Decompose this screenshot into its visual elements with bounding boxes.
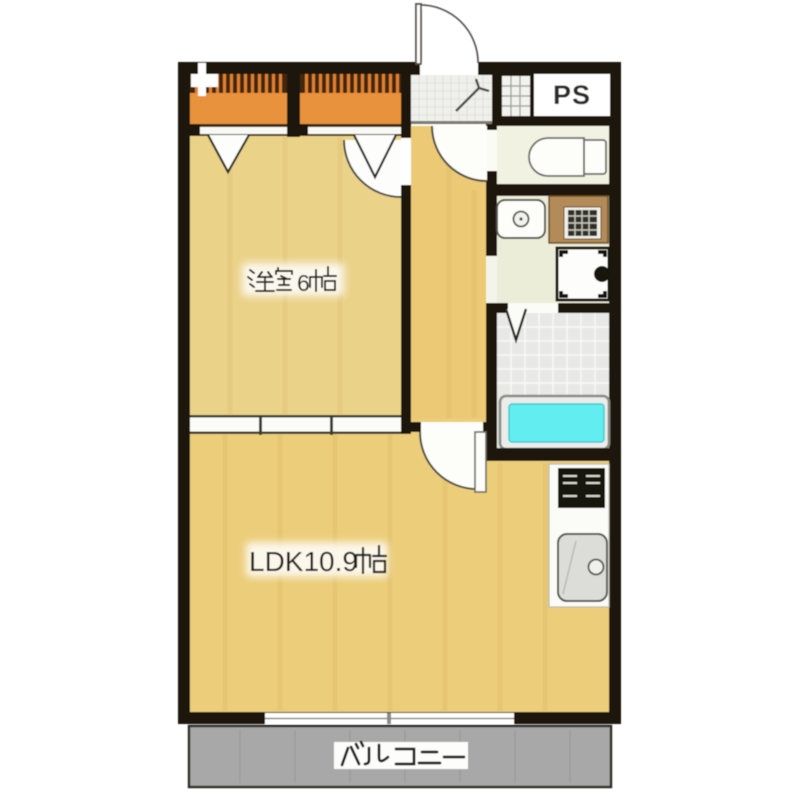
svg-text:LDK10.9: LDK10.9 [249, 546, 358, 577]
svg-text:PS: PS [553, 80, 591, 110]
svg-text:6: 6 [297, 270, 310, 296]
